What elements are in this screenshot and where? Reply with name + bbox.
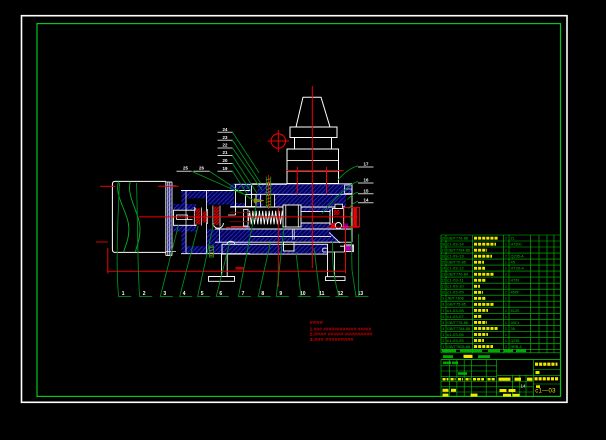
- svg-text:25: 25: [183, 166, 188, 171]
- svg-text:1: 1: [505, 279, 507, 283]
- svg-text:40Cr: 40Cr: [511, 321, 521, 325]
- svg-text:c1-03-14: c1-03-14: [447, 243, 464, 247]
- svg-text:2: 2: [505, 291, 507, 295]
- svg-text:Q235: Q235: [511, 339, 520, 343]
- svg-text:c1-03-05: c1-03-05: [447, 339, 464, 343]
- svg-text:c1-03-10: c1-03-10: [447, 285, 464, 289]
- svg-text:c1-03-13: c1-03-13: [447, 255, 464, 259]
- svg-text:5120: 5120: [511, 309, 520, 313]
- svg-text:15: 15: [364, 188, 369, 193]
- svg-text:2: 2: [505, 345, 507, 349]
- svg-text:11: 11: [442, 285, 446, 289]
- svg-text:45: 45: [511, 261, 516, 265]
- svg-text:1: 1: [505, 297, 507, 301]
- svg-text:1: 1: [505, 243, 507, 247]
- svg-text:GB/T776-86: GB/T776-86: [447, 321, 468, 325]
- svg-text:2: 2: [505, 273, 507, 277]
- svg-text:15: 15: [441, 261, 445, 265]
- svg-text:45KF: 45KF: [511, 291, 520, 295]
- svg-text:3.### #########: 3.### #########: [310, 337, 355, 342]
- svg-text:26: 26: [199, 166, 204, 171]
- svg-text:GB/T7605-86: GB/T7605-86: [447, 345, 470, 349]
- svg-text:2: 2: [505, 327, 507, 331]
- svg-text:c1-03-12: c1-03-12: [447, 267, 464, 271]
- svg-text:2: 2: [442, 339, 444, 343]
- svg-text:c1—03: c1—03: [535, 389, 556, 395]
- svg-text:JB/T7306: JB/T7306: [447, 297, 464, 301]
- svg-text:17: 17: [364, 162, 369, 167]
- svg-text:HT20-4: HT20-4: [511, 267, 524, 271]
- svg-text:14: 14: [521, 384, 526, 389]
- svg-text:5: 5: [442, 321, 444, 325]
- svg-text:1: 1: [505, 339, 507, 343]
- svg-text:1: 1: [505, 261, 507, 265]
- svg-text:c1-03-07: c1-03-07: [447, 315, 464, 319]
- svg-text:10: 10: [441, 291, 445, 295]
- svg-text:8: 8: [442, 303, 444, 307]
- svg-text:35: 35: [511, 327, 516, 331]
- svg-text:1: 1: [505, 267, 507, 271]
- svg-text:19: 19: [441, 237, 445, 241]
- svg-text:1: 1: [505, 321, 507, 325]
- svg-text:18: 18: [441, 243, 445, 247]
- svg-text:GB/T7784-86: GB/T7784-86: [447, 249, 470, 253]
- svg-text:2: 2: [505, 309, 507, 313]
- svg-text:22: 22: [223, 143, 228, 148]
- svg-text:13: 13: [441, 273, 445, 277]
- svg-text:6: 6: [442, 315, 444, 319]
- svg-text:1: 1: [505, 333, 507, 337]
- svg-text:Q235-A: Q235-A: [511, 255, 525, 259]
- svg-text:21: 21: [223, 150, 228, 155]
- svg-text:HRB-4: HRB-4: [511, 345, 522, 349]
- svg-text:c1-03-08: c1-03-08: [447, 309, 464, 313]
- svg-text:16: 16: [364, 178, 369, 183]
- svg-text:16: 16: [441, 255, 445, 259]
- svg-text:12: 12: [441, 279, 445, 283]
- svg-text:c1-03-06: c1-03-06: [447, 333, 464, 337]
- svg-text:GB/T776-84: GB/T776-84: [447, 273, 468, 277]
- svg-text:3: 3: [442, 333, 444, 337]
- svg-text:1: 1: [505, 303, 507, 307]
- svg-text:HT200: HT200: [511, 243, 522, 247]
- svg-text:17: 17: [441, 249, 445, 253]
- svg-text:7: 7: [442, 309, 444, 313]
- svg-text:1: 1: [505, 285, 507, 289]
- svg-text:c1-03-09: c1-03-09: [447, 291, 464, 295]
- svg-text:GB/T75-85: GB/T75-85: [447, 303, 466, 307]
- svg-text:24: 24: [223, 127, 228, 132]
- svg-text:GB/T7784-88: GB/T7784-88: [447, 327, 470, 331]
- svg-text:HT20: HT20: [511, 279, 520, 283]
- svg-text:14: 14: [364, 197, 369, 202]
- svg-text:19: 19: [223, 166, 228, 171]
- svg-text:23: 23: [223, 135, 228, 140]
- svg-text:9: 9: [442, 297, 444, 301]
- svg-text:2: 2: [505, 237, 507, 241]
- svg-text:20: 20: [223, 158, 228, 163]
- svg-text:1: 1: [505, 249, 507, 253]
- svg-text:c1-03-11: c1-03-11: [447, 279, 464, 283]
- svg-text:14: 14: [441, 267, 445, 271]
- svg-text:1: 1: [505, 315, 507, 319]
- svg-text:4: 4: [442, 327, 444, 331]
- svg-text:GB/T776-88: GB/T776-88: [447, 237, 468, 241]
- svg-text:GB/T70-85: GB/T70-85: [447, 261, 466, 265]
- svg-text:ZL: ZL: [511, 237, 516, 241]
- svg-text:2: 2: [505, 255, 507, 259]
- svg-text:1: 1: [442, 345, 444, 349]
- svg-text:####: ####: [310, 320, 324, 325]
